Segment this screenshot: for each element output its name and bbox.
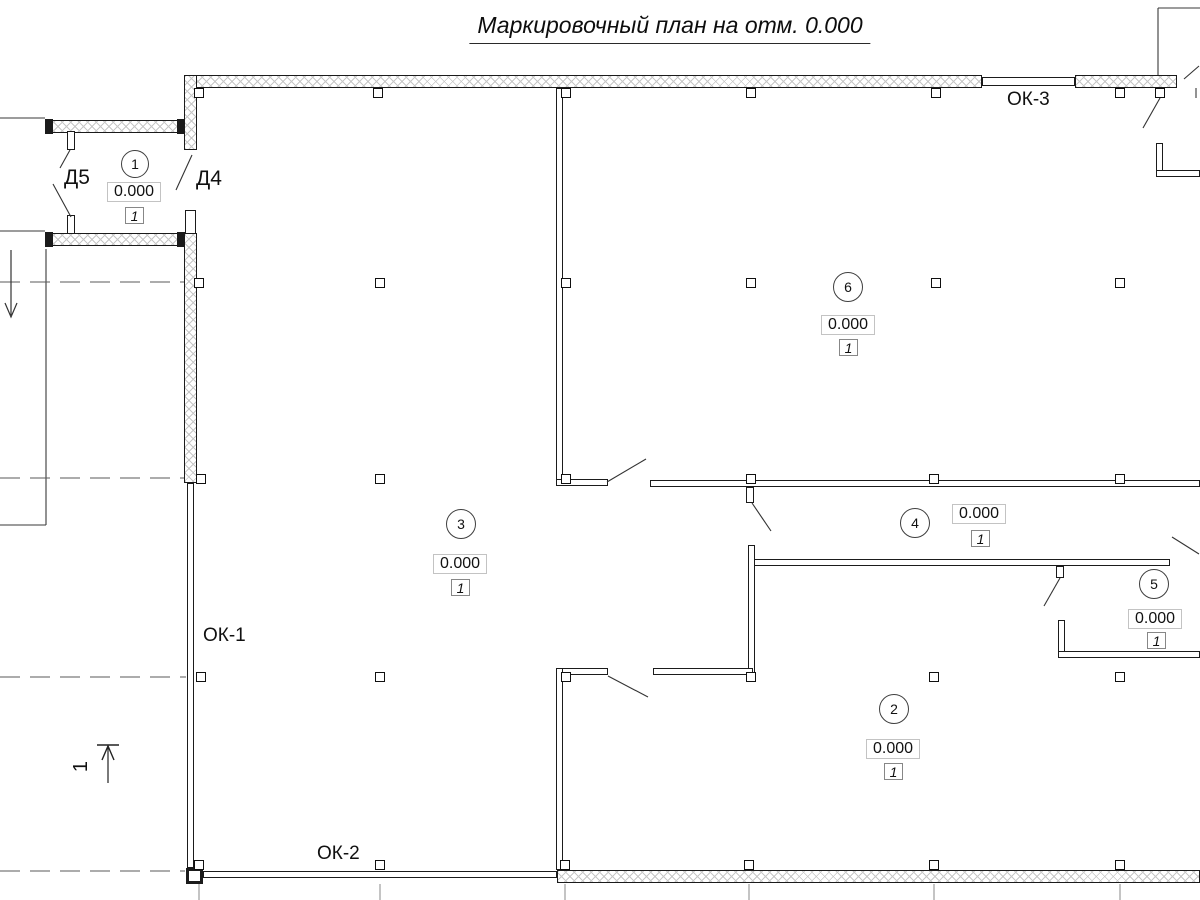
column-marker	[194, 860, 204, 870]
column-marker	[746, 278, 756, 288]
column-marker	[929, 672, 939, 682]
room-number-circle: 5	[1139, 569, 1169, 599]
exterior-wall	[45, 120, 185, 133]
floor-plan: Маркировочный план на отм. 0.000 1 ОК-1О…	[0, 0, 1200, 900]
interior-wall	[653, 668, 753, 675]
column-marker	[196, 672, 206, 682]
column-marker	[1115, 672, 1125, 682]
column-marker	[929, 474, 939, 484]
section-mark-label: 1	[70, 761, 93, 772]
elevation-label: 0.000	[866, 739, 920, 759]
column-marker	[746, 474, 756, 484]
door-swing-line	[607, 459, 646, 482]
interior-wall	[556, 668, 563, 870]
window-label: ОК-2	[317, 844, 360, 863]
plan-title: Маркировочный план на отм. 0.000	[469, 12, 870, 44]
column-marker	[1155, 88, 1165, 98]
door-swing-line	[176, 155, 192, 190]
column-marker	[929, 860, 939, 870]
finish-type-label: 1	[884, 763, 903, 780]
down-arrow-head	[5, 303, 17, 317]
window-label: ОК-1	[203, 626, 246, 645]
interior-wall	[185, 210, 196, 234]
column-marker	[1115, 88, 1125, 98]
finish-type-label: 1	[125, 207, 144, 224]
finish-type-label: 1	[1147, 632, 1166, 649]
column-marker	[561, 278, 571, 288]
column-marker	[1115, 278, 1125, 288]
interior-wall	[203, 871, 557, 878]
interior-wall	[746, 487, 754, 503]
door-swing-line	[608, 676, 648, 697]
door-swing-line	[1172, 537, 1199, 554]
interior-wall	[1156, 170, 1200, 177]
room-number-circle: 3	[446, 509, 476, 539]
column-marker	[561, 88, 571, 98]
exterior-wall	[557, 870, 1200, 883]
column-marker	[746, 672, 756, 682]
elevation-label: 0.000	[107, 182, 161, 202]
exterior-wall	[1075, 75, 1177, 88]
door-label: Д5	[64, 167, 90, 188]
column-marker	[561, 672, 571, 682]
wall-end-cap	[177, 119, 185, 134]
elevation-label: 0.000	[1128, 609, 1182, 629]
column-marker	[931, 278, 941, 288]
column-marker	[375, 474, 385, 484]
column-marker	[375, 860, 385, 870]
door-label: Д4	[196, 168, 222, 189]
wall-end-cap	[45, 232, 53, 247]
exterior-wall	[184, 233, 197, 483]
room-number-circle: 2	[879, 694, 909, 724]
exterior-wall	[185, 75, 982, 88]
exterior-wall	[45, 233, 185, 246]
column-marker	[194, 278, 204, 288]
interior-wall	[1056, 566, 1064, 578]
door-swing-line	[1044, 578, 1060, 606]
interior-wall	[982, 77, 1075, 86]
column-marker	[1115, 860, 1125, 870]
column-marker	[744, 860, 754, 870]
column-marker	[375, 672, 385, 682]
column-marker	[746, 88, 756, 98]
door-swing-line	[1184, 66, 1199, 79]
wall-corner-block	[186, 868, 203, 884]
wall-end-cap	[177, 232, 185, 247]
interior-wall	[67, 215, 75, 234]
window-label: ОК-3	[1007, 90, 1050, 109]
elevation-label: 0.000	[952, 504, 1006, 524]
interior-wall	[748, 545, 755, 675]
interior-wall	[67, 131, 75, 150]
column-marker	[561, 474, 571, 484]
section-mark-arrowhead	[102, 746, 114, 760]
finish-type-label: 1	[839, 339, 858, 356]
interior-wall	[748, 559, 1170, 566]
elevation-label: 0.000	[821, 315, 875, 335]
elevation-label: 0.000	[433, 554, 487, 574]
plan-lines-layer	[0, 0, 1200, 900]
finish-type-label: 1	[971, 530, 990, 547]
column-marker	[560, 860, 570, 870]
door-swing-line	[752, 503, 771, 531]
room-number-circle: 4	[900, 508, 930, 538]
finish-type-label: 1	[451, 579, 470, 596]
door-swing-line	[1143, 98, 1160, 128]
column-marker	[375, 278, 385, 288]
room-number-circle: 1	[121, 150, 149, 178]
exterior-wall	[184, 75, 197, 150]
column-marker	[373, 88, 383, 98]
interior-wall	[1058, 651, 1200, 658]
interior-wall	[187, 483, 194, 868]
column-marker	[196, 474, 206, 484]
column-marker	[194, 88, 204, 98]
column-marker	[1115, 474, 1125, 484]
column-marker	[931, 88, 941, 98]
wall-end-cap	[45, 119, 53, 134]
room-number-circle: 6	[833, 272, 863, 302]
